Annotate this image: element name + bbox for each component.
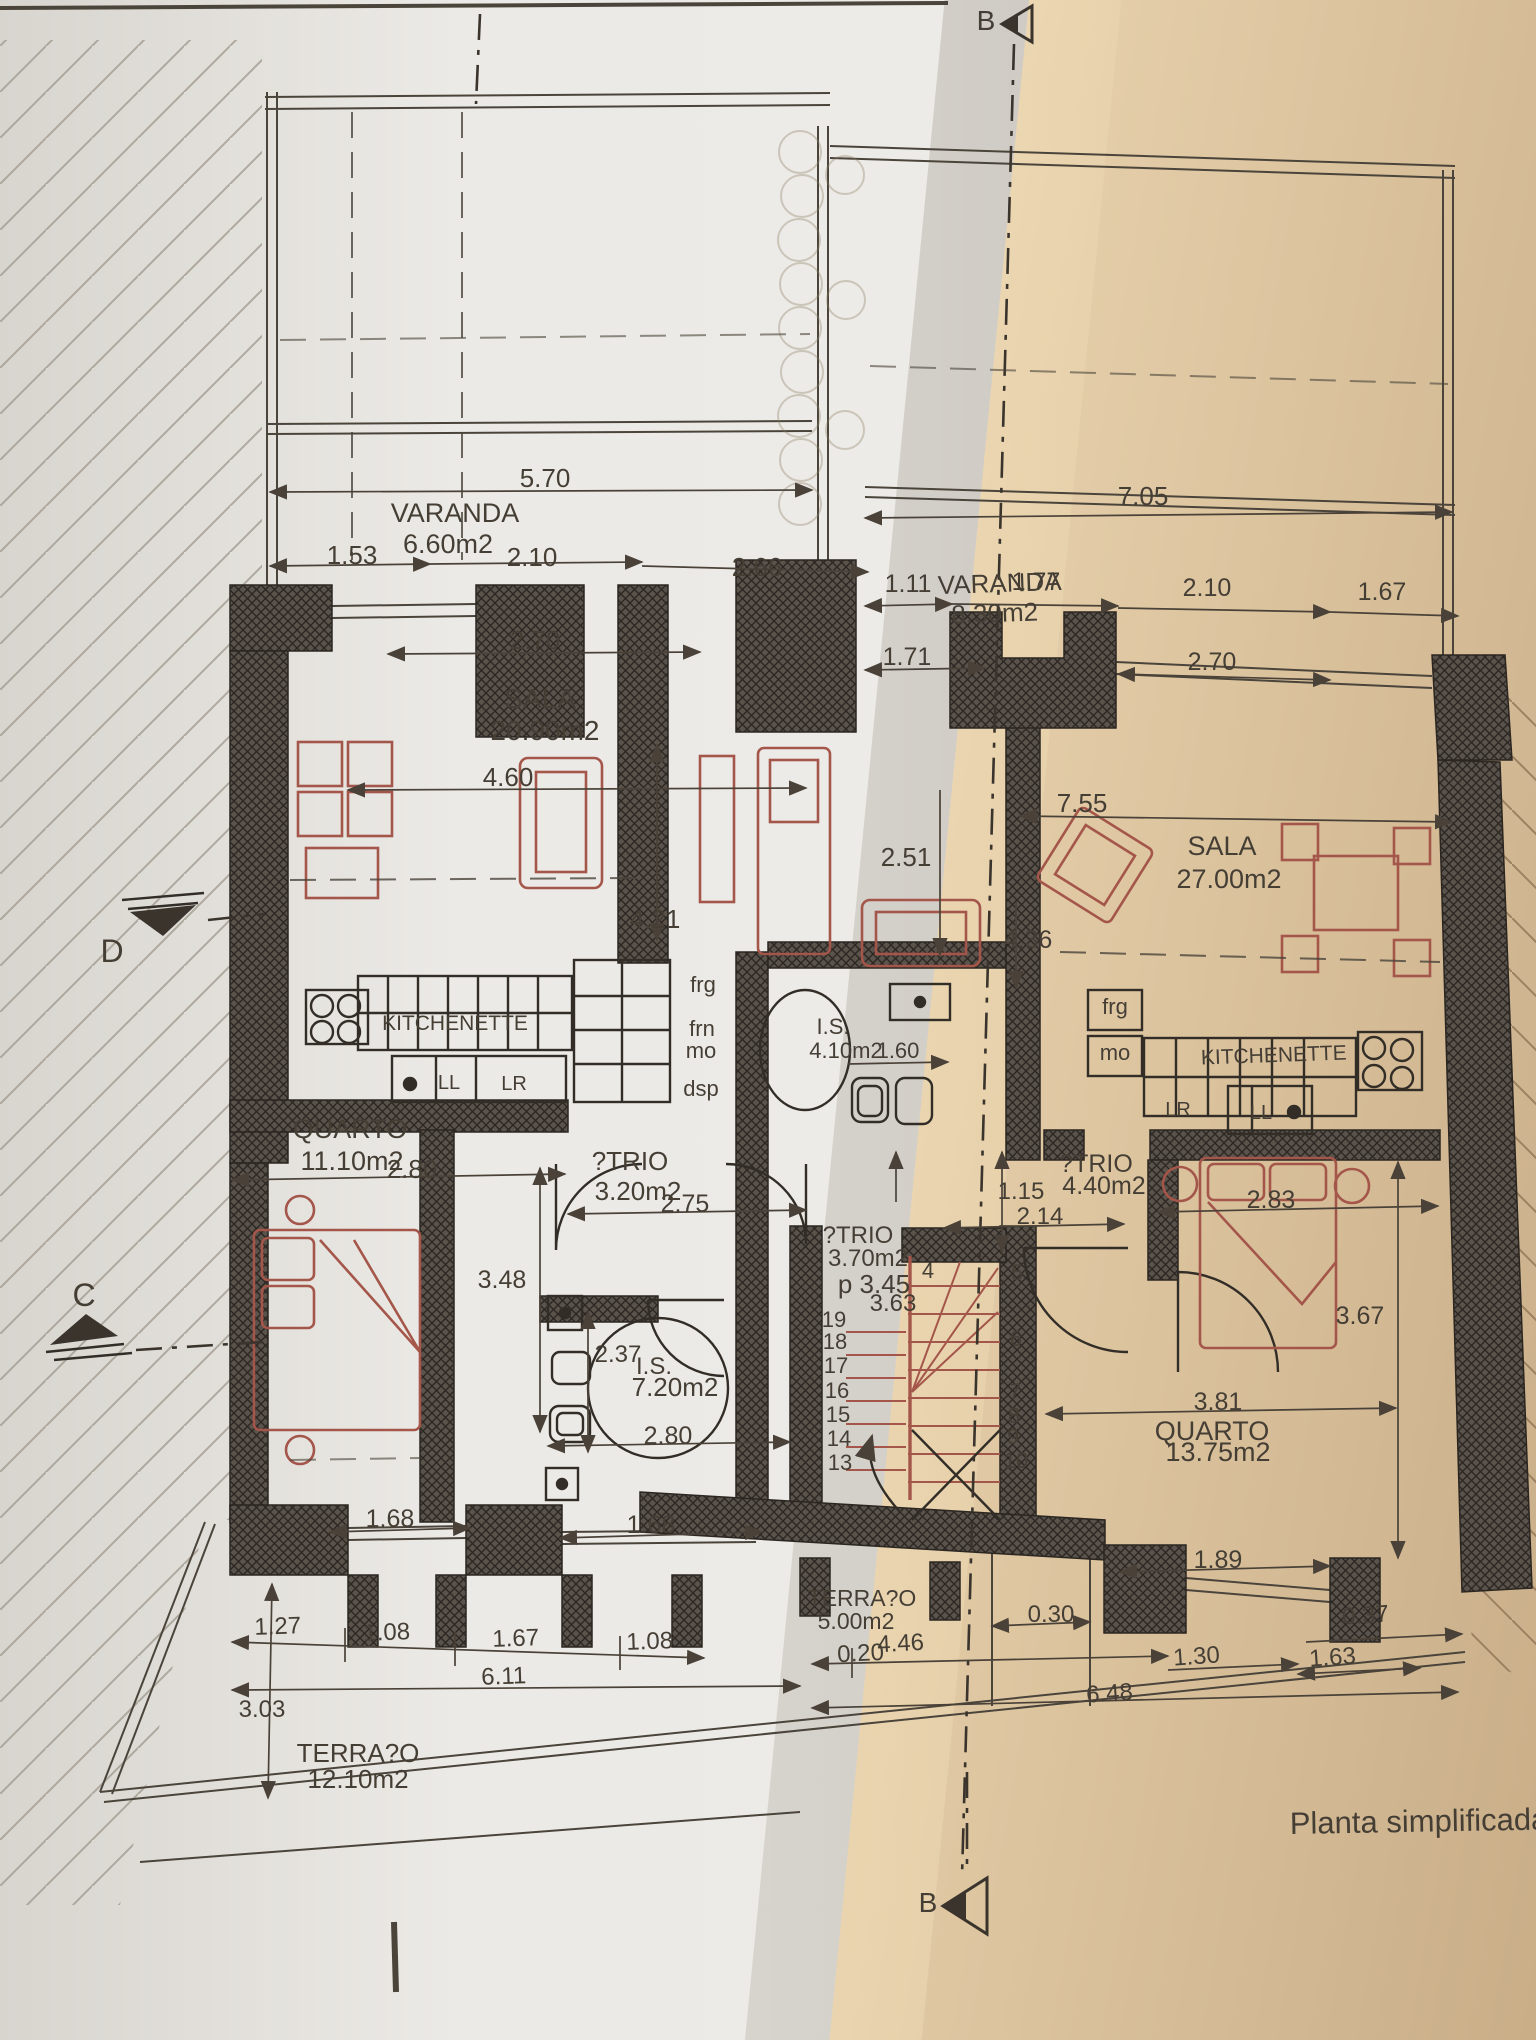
marker-c-label: C [72, 1277, 95, 1313]
dim-6-11: 6.11 [481, 1662, 527, 1691]
dim-1-63: 1.63 [1308, 1642, 1356, 1672]
left-dsp: dsp [683, 1076, 718, 1101]
section-b-top-arrow-fill [1002, 14, 1018, 34]
varanda-right-area: 8.30m2 [951, 597, 1039, 630]
dim-2-83: 2.83 [1247, 1186, 1296, 1214]
stair-num-18: 18 [823, 1329, 847, 1354]
right-frg: frg [1102, 994, 1128, 1019]
kitchenette-right: KITCHENETTE [1200, 1041, 1347, 1069]
right-ll: LL [1250, 1102, 1272, 1124]
dim-5-70: 5.70 [520, 463, 571, 493]
varanda-left-label: VARANDA [391, 498, 520, 528]
dim-1-60: 1.60 [877, 1038, 920, 1063]
dim-2-37: 2.37 [595, 1341, 642, 1368]
floorplan-drawing: VARANDA6.60m25.701.532.102.662.707.05VAR… [0, 0, 1536, 2040]
photographed-floorplan-page: VARANDA6.60m25.701.532.102.662.707.05VAR… [0, 0, 1536, 2040]
dim-7-55: 7.55 [1057, 788, 1108, 818]
sala-right-area: 27.00m2 [1176, 864, 1281, 894]
dim-6-48: 6.48 [1085, 1678, 1133, 1708]
terrace-plants [778, 131, 865, 525]
dim-4-46: 4.46 [877, 1629, 925, 1658]
stair-num-14: 14 [827, 1426, 851, 1451]
dim-0-37: 0.37 [1341, 1600, 1389, 1630]
site-hatch-left [0, 40, 262, 1905]
stair-num-15: 15 [826, 1402, 850, 1427]
dim-3-03: 3.03 [239, 1696, 286, 1723]
right-mo: mo [1100, 1040, 1131, 1065]
dim-7-05: 7.05 [1118, 481, 1169, 511]
is-mid-label: I.S. [816, 1014, 849, 1039]
left-lr: LR [501, 1073, 527, 1095]
dim-2-14: 2.14 [1017, 1203, 1064, 1230]
dim-1-11: 1.11 [885, 570, 932, 598]
dim-1-68-mid: 1.68 [627, 1511, 676, 1539]
dim-4-36: 4.36 [1004, 926, 1053, 954]
dim-2-10-left: 2.10 [507, 542, 558, 572]
marker-b-bottom-label: B [919, 1887, 938, 1918]
dim-4-21: 4.21 [630, 904, 681, 934]
stair-num-4: 4 [922, 1258, 934, 1283]
dim-1-30: 1.30 [1172, 1641, 1220, 1671]
dim-1-08-b: 1.08 [626, 1627, 674, 1656]
stair-num-16: 16 [825, 1378, 849, 1403]
is-mid-area: 4.10m2 [809, 1038, 882, 1063]
plan-caption: Planta simplificada d [1290, 1801, 1536, 1841]
varanda-left-area: 6.60m2 [403, 529, 493, 559]
right-lr: LR [1165, 1099, 1191, 1121]
dim-2-66: 2.66 [732, 552, 783, 582]
dim-1-77: 1.77 [1012, 568, 1061, 596]
left-frg: frg [690, 972, 716, 997]
dim-2-51: 2.51 [881, 842, 932, 872]
atrio-left-label: ?TRIO [592, 1146, 669, 1176]
left-mo: mo [686, 1038, 717, 1063]
quarto-left-label: QUARTO [293, 1114, 408, 1144]
dim-2-70-right: 2.70 [1188, 648, 1237, 676]
dim-3-63: 3.63 [870, 1290, 917, 1317]
left-ll: LL [438, 1072, 460, 1094]
stair-num-7: 7 [1009, 1379, 1021, 1404]
marker-d-label: D [100, 933, 123, 969]
stair-num-17: 17 [824, 1353, 848, 1378]
dim-1-15: 1.15 [998, 1178, 1045, 1205]
marker-b-top-label: B [977, 5, 996, 36]
dim-2-10-right: 2.10 [1183, 574, 1232, 602]
quarto-right-area: 13.75m2 [1165, 1437, 1270, 1467]
kitchenette-left: KITCHENETTE [382, 1012, 528, 1035]
dim-1-53: 1.53 [327, 540, 378, 570]
sala-left-area: 20.90m2 [491, 715, 600, 746]
section-marker-b-top [1002, 6, 1032, 42]
dim-1-27: 1.27 [254, 1612, 302, 1641]
sala-right-label: SALA [1187, 831, 1256, 861]
dim-3-81: 3.81 [1194, 1388, 1243, 1416]
stair-num-6: 6 [1010, 1326, 1022, 1351]
dim-2-70-left: 2.70 [510, 625, 561, 655]
dim-1-68-left: 1.68 [366, 1505, 415, 1533]
dim-1-67-right: 1.67 [1358, 578, 1407, 606]
stair-num-9: 9 [1007, 1424, 1019, 1449]
atrio-mid-area: 3.70m2 [828, 1245, 908, 1272]
dim-3-67: 3.67 [1336, 1302, 1385, 1330]
section-b-bottom-arrow-fill [943, 1891, 966, 1921]
dim-2-80-quarto: 2.80 [387, 1154, 438, 1184]
dim-2-75: 2.75 [661, 1190, 710, 1218]
atrio-right-area: 4.40m2 [1062, 1172, 1145, 1200]
dim-1-71: 1.71 [883, 643, 932, 671]
sala-left-label: SALA [504, 683, 576, 714]
dim-1-67-bottom: 1.67 [492, 1624, 540, 1653]
stair-num-10: 10 [1004, 1448, 1028, 1473]
terraco-left-area: 12.10m2 [307, 1764, 408, 1794]
is-left-area: 7.20m2 [632, 1372, 719, 1402]
dim-3-48: 3.48 [478, 1266, 527, 1294]
dim-1-89: 1.89 [1194, 1546, 1243, 1574]
dim-0-30: 0.30 [1028, 1601, 1075, 1628]
stair-num-5: 5 [1011, 1260, 1023, 1285]
dim-1-08-a: 1.08 [363, 1618, 411, 1647]
stair-num-13: 13 [828, 1450, 852, 1475]
dim-2-80-is: 2.80 [644, 1422, 693, 1450]
dim-4-60: 4.60 [483, 762, 534, 792]
